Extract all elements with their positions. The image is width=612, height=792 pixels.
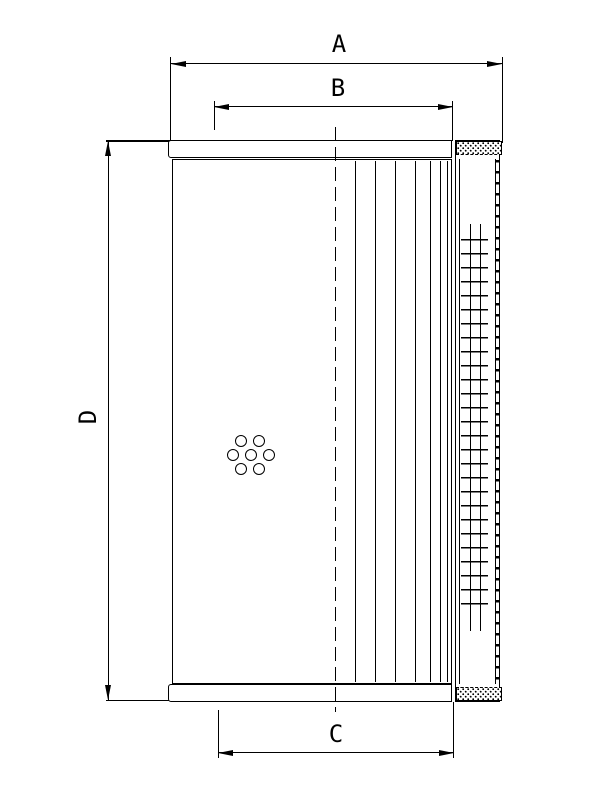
filter-body	[172, 159, 452, 684]
crimped-band-bottom	[456, 687, 502, 701]
seam-strip-inner-line	[459, 159, 460, 684]
perforation-hole	[253, 463, 265, 475]
centerline	[335, 127, 336, 712]
pleat-line	[430, 161, 431, 682]
arrow-right-icon	[439, 750, 454, 756]
dimension-d-label: D	[76, 405, 100, 429]
dimension-a-line	[171, 63, 502, 64]
pleat-line	[355, 161, 356, 682]
perforation-hole	[227, 449, 239, 461]
arrow-left-icon	[214, 104, 229, 110]
perforation-hole	[235, 463, 247, 475]
perforation-hole	[253, 435, 265, 447]
arrow-down-icon	[105, 685, 111, 700]
arrow-right-icon	[438, 104, 453, 110]
seam-crimp-edge	[496, 160, 499, 682]
arrow-right-icon	[487, 61, 502, 67]
seam-ladder-rungs	[461, 239, 488, 617]
pleat-line	[440, 161, 441, 682]
dimension-d-line	[108, 141, 109, 700]
dimension-d-ext-top	[106, 140, 170, 141]
top-end-cap	[168, 140, 452, 158]
dimension-a-label: A	[327, 32, 351, 56]
dimension-c-label: C	[324, 722, 348, 746]
pleat-line	[395, 161, 396, 682]
arrow-left-icon	[218, 750, 233, 756]
dimension-c-line	[218, 752, 454, 753]
perforation-hole	[245, 449, 257, 461]
pleat-line	[415, 161, 416, 682]
dimension-d-ext-bottom	[106, 700, 170, 701]
dimension-a-ext-right	[502, 57, 503, 143]
pleat-line	[447, 161, 448, 682]
arrow-up-icon	[105, 141, 111, 156]
dimension-b-label: B	[326, 76, 350, 100]
dimension-a-ext-left	[170, 57, 171, 142]
perforation-hole	[235, 435, 247, 447]
pleat-line	[375, 161, 376, 682]
perforation-hole	[263, 449, 275, 461]
drawing-canvas: A B C D	[0, 0, 612, 792]
arrow-left-icon	[171, 61, 186, 67]
crimped-band-top	[456, 141, 502, 155]
bottom-end-cap	[168, 684, 452, 702]
dimension-b-line	[214, 106, 453, 107]
